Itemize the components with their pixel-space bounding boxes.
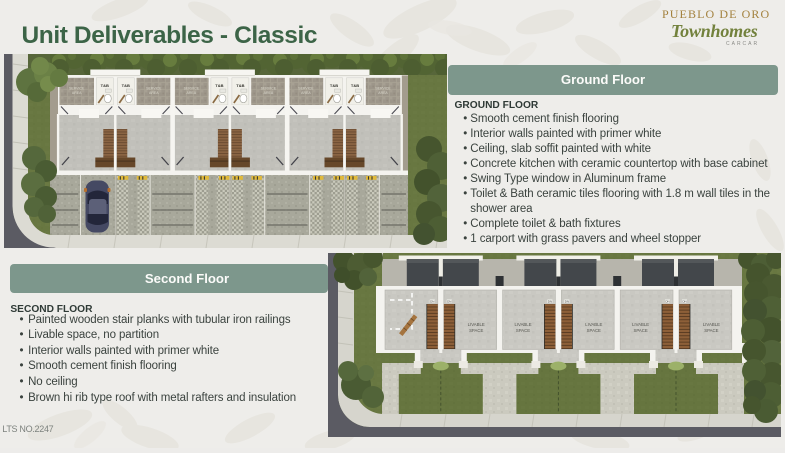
svg-text:SERVICE: SERVICE [261,87,277,91]
svg-text:AREA: AREA [378,91,388,95]
svg-text:T&B: T&B [122,83,130,88]
svg-text:SPACE: SPACE [633,328,647,333]
svg-text:SERVICE: SERVICE [184,87,200,91]
svg-text:T&B: T&B [236,83,244,88]
svg-text:SPACE: SPACE [704,328,718,333]
svg-text:LIVABLE: LIVABLE [703,322,720,327]
svg-text:SERVICE: SERVICE [298,87,314,91]
svg-text:DN: DN [548,299,552,303]
svg-text:DN: DN [682,299,686,303]
svg-text:AREA: AREA [72,91,82,95]
svg-text:AREA: AREA [301,91,311,95]
svg-text:DN: DN [565,299,569,303]
svg-text:SPACE: SPACE [587,328,601,333]
svg-text:SERVICE: SERVICE [69,87,85,91]
svg-text:DN: DN [430,299,434,303]
svg-text:LIVABLE: LIVABLE [514,322,531,327]
svg-text:T&B: T&B [351,83,359,88]
svg-text:AREA: AREA [187,91,197,95]
svg-text:T&B: T&B [330,83,338,88]
svg-text:SERVICE: SERVICE [375,87,391,91]
svg-text:SERVICE: SERVICE [146,87,162,91]
svg-text:LIVABLE: LIVABLE [632,322,649,327]
svg-text:T&B: T&B [215,83,223,88]
svg-text:DN: DN [447,299,451,303]
svg-text:SPACE: SPACE [469,328,483,333]
svg-text:AREA: AREA [149,91,159,95]
svg-text:DN: DN [665,299,669,303]
svg-text:T&B: T&B [101,83,109,88]
svg-text:LIVABLE: LIVABLE [468,322,485,327]
svg-text:SPACE: SPACE [516,328,530,333]
svg-text:AREA: AREA [264,91,274,95]
svg-text:LIVABLE: LIVABLE [585,322,602,327]
